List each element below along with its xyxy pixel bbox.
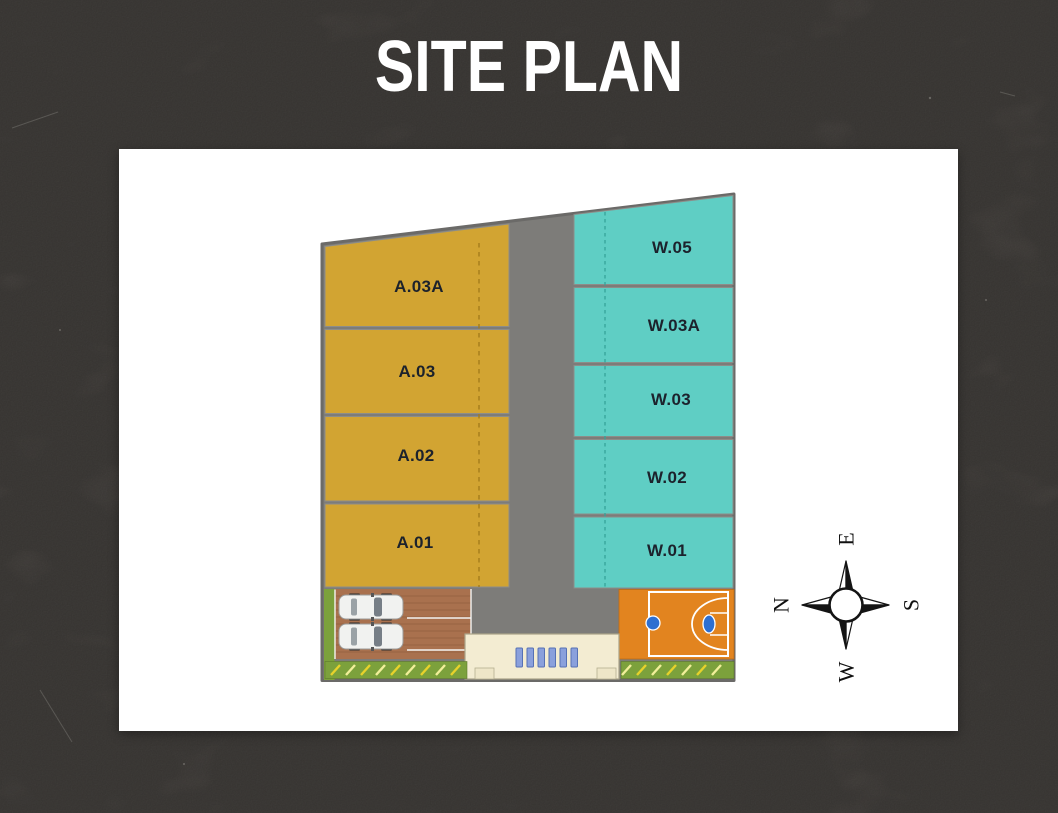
basketball-court <box>619 590 734 660</box>
compass-rose: N E S W <box>769 532 924 682</box>
entrance-gate <box>465 634 619 679</box>
car-icon <box>339 622 403 651</box>
plot-label-a03: A.03 <box>398 362 435 381</box>
gate-wing-right <box>597 668 616 679</box>
compass-circle <box>830 589 863 622</box>
page-background: SITE PLAN <box>0 0 1058 813</box>
compass-north-label: N <box>769 597 794 613</box>
plot-label-w01: W.01 <box>647 541 687 560</box>
plot-label-w03a: W.03A <box>648 316 701 335</box>
plot-label-w05: W.05 <box>652 238 692 257</box>
gate-wing-left <box>475 668 494 679</box>
compass-east-label: E <box>834 532 859 545</box>
plot-label-w02: W.02 <box>647 468 687 487</box>
site-plan-card: A.03A A.03 A.02 A.01 W.05 W.03A W.03 W.0… <box>119 149 958 731</box>
basketball-hoop-icon <box>703 615 715 633</box>
compass-south-label: S <box>899 599 924 611</box>
site-plan-drawing: A.03A A.03 A.02 A.01 W.05 W.03A W.03 W.0… <box>119 149 958 731</box>
page-title-text: SITE PLAN <box>375 30 683 106</box>
plot-label-w03: W.03 <box>651 390 691 409</box>
car-icon <box>339 593 403 621</box>
page-title: SITE PLAN <box>0 30 1058 106</box>
plot-label-a03a: A.03A <box>394 277 444 296</box>
compass-west-label: W <box>834 661 859 682</box>
plot-label-a02: A.02 <box>397 446 434 465</box>
court-centre-circle <box>646 616 660 630</box>
plot-label-a01: A.01 <box>396 533 433 552</box>
